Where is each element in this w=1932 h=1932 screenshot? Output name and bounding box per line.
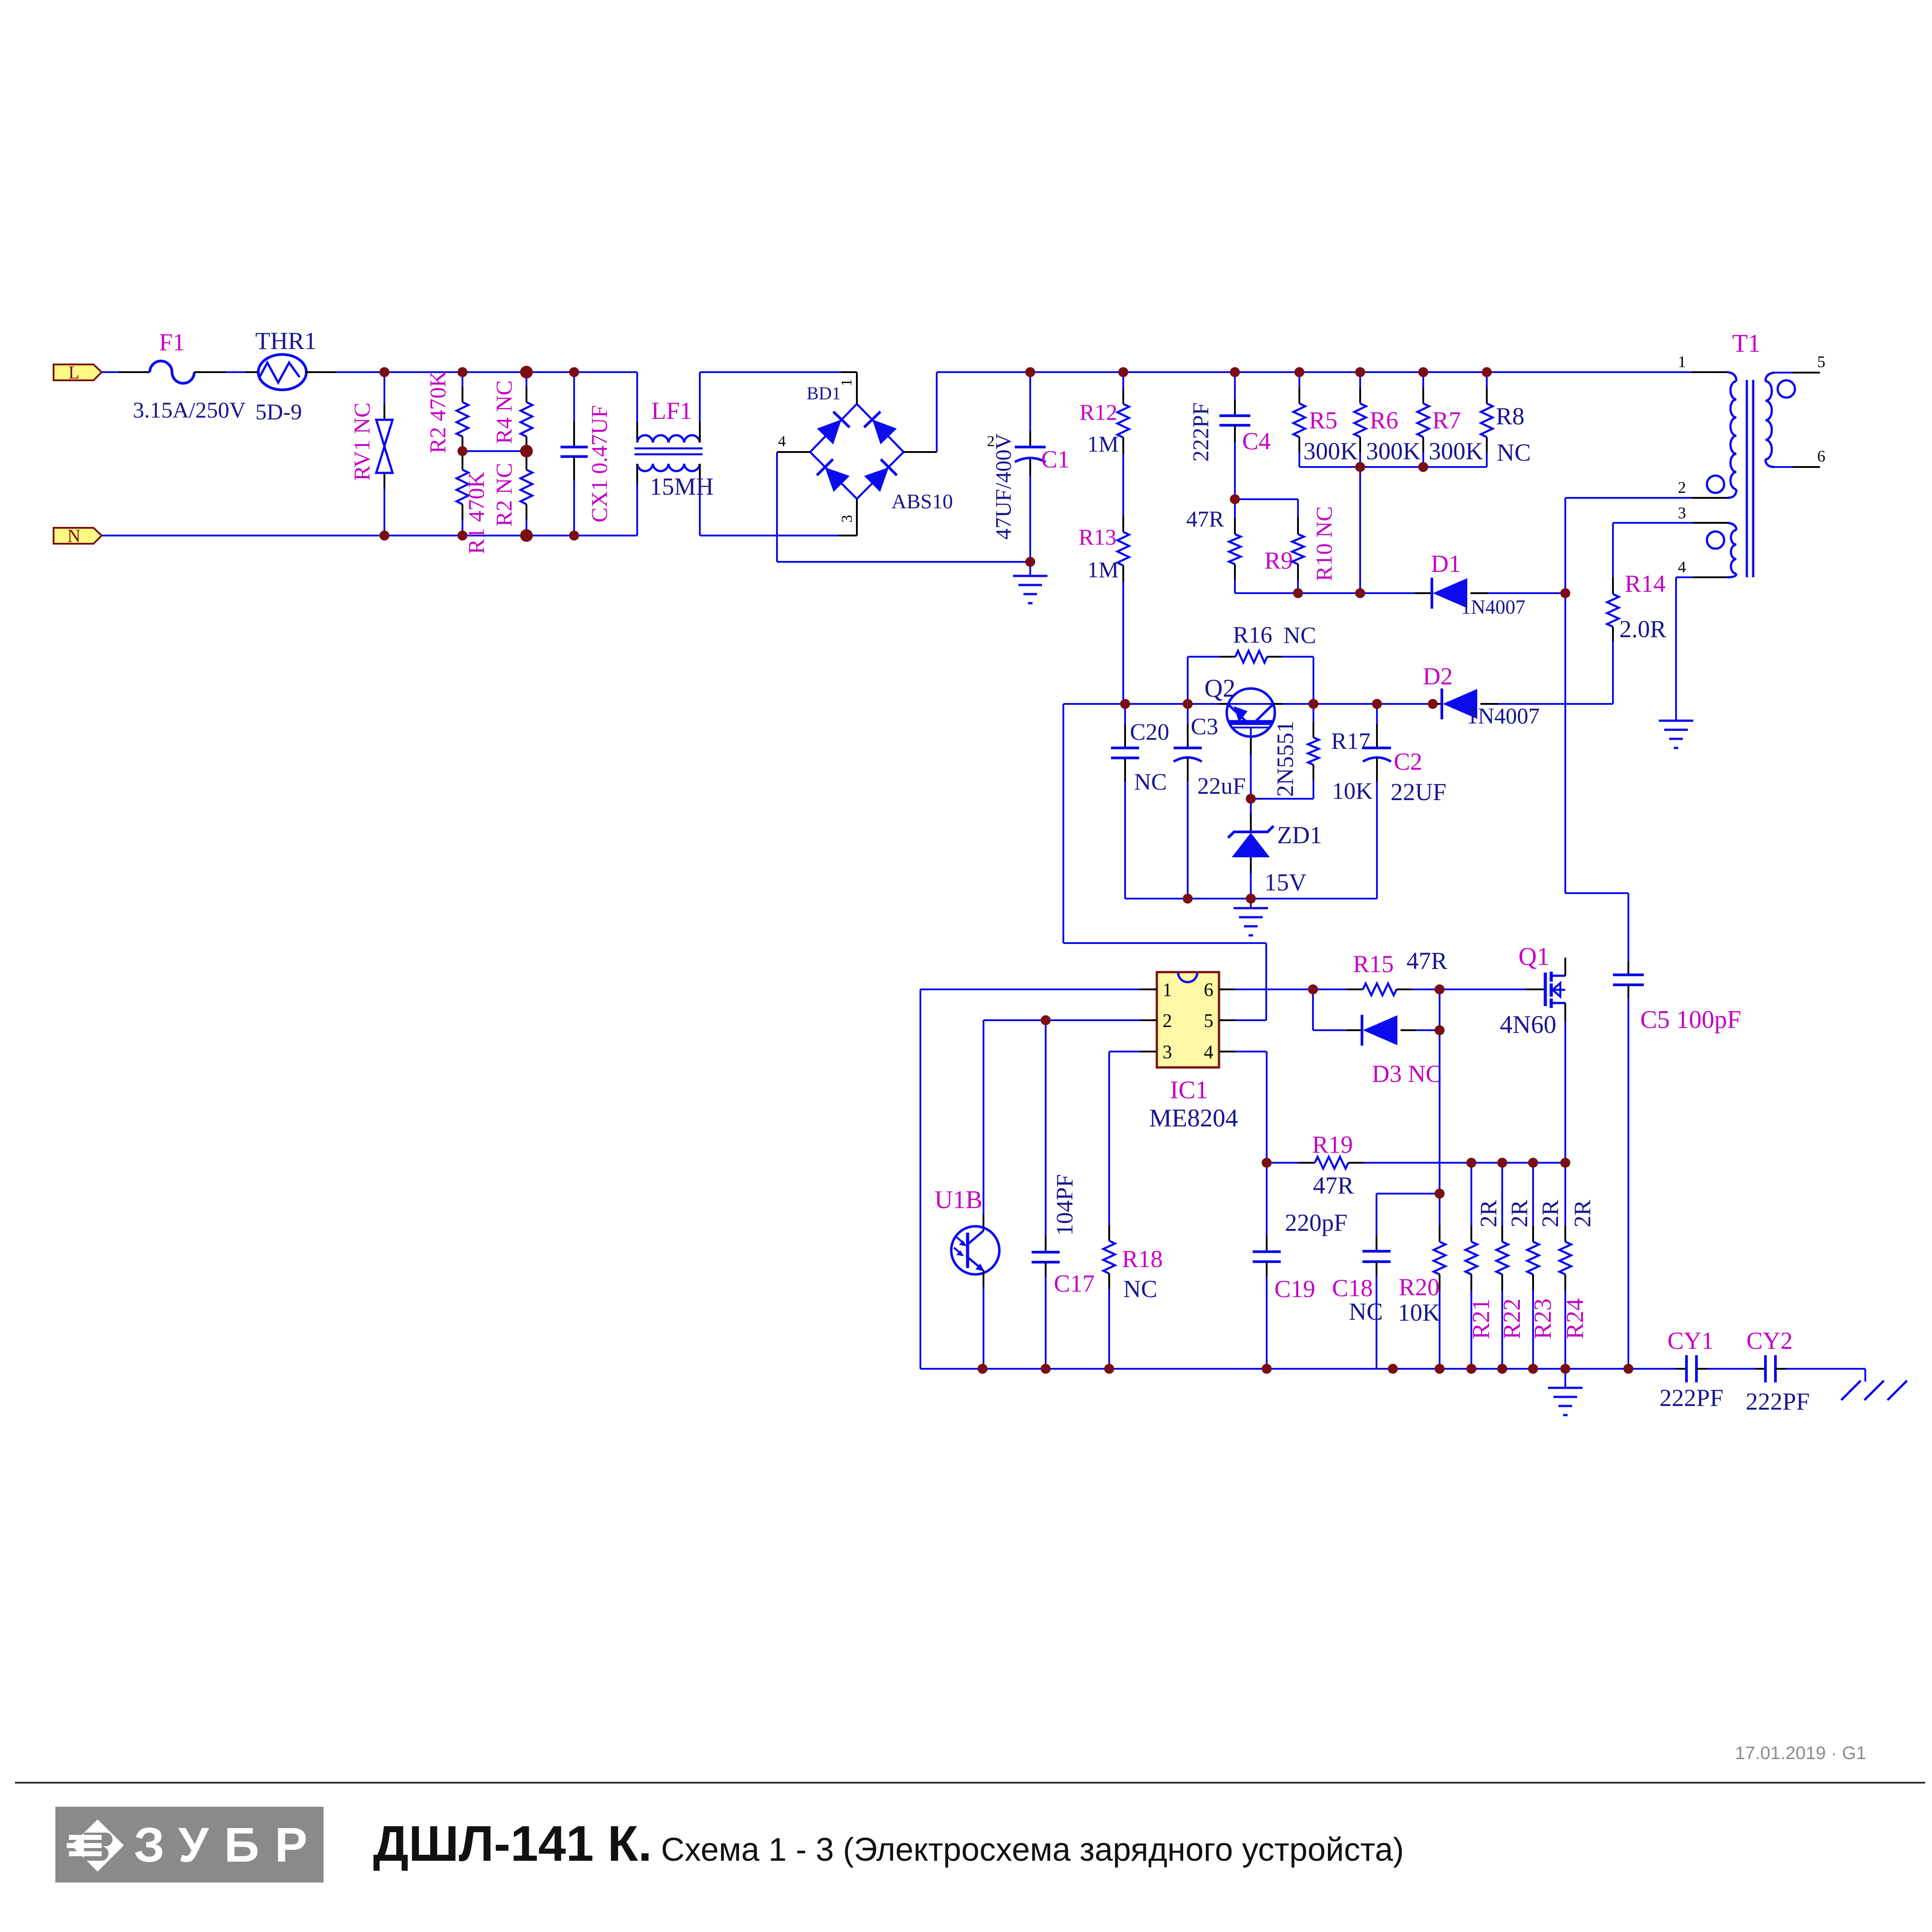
svg-text:U1B: U1B [934,1186,983,1214]
svg-text:NC: NC [1349,1298,1383,1325]
svg-text:R23: R23 [1529,1298,1556,1339]
svg-text:T1: T1 [1732,329,1760,358]
svg-text:4: 4 [1204,1042,1214,1063]
svg-text:1N4007: 1N4007 [1461,596,1525,618]
svg-text:222PF: 222PF [1188,403,1213,462]
svg-text:R12: R12 [1080,399,1117,425]
svg-text:2: 2 [1163,1011,1172,1032]
svg-text:1N4007: 1N4007 [1466,703,1539,728]
svg-text:NC: NC [1283,623,1316,649]
svg-text:R13: R13 [1079,524,1116,550]
svg-text:C5 100pF: C5 100pF [1640,1006,1741,1034]
svg-text:NC: NC [1497,439,1531,466]
svg-text:10K: 10K [1398,1299,1440,1326]
svg-text:THR1: THR1 [256,327,317,354]
svg-text:LF1: LF1 [651,397,692,424]
svg-text:R20: R20 [1399,1273,1440,1301]
svg-text:R10 NC: R10 NC [1311,506,1337,581]
svg-text:C4: C4 [1242,428,1271,455]
svg-text:C18: C18 [1332,1274,1373,1302]
svg-text:IC1: IC1 [1170,1076,1208,1104]
svg-text:2R: 2R [1570,1200,1596,1227]
svg-text:2R: 2R [1538,1200,1563,1227]
svg-text:R1 470K: R1 470K [463,472,489,554]
svg-text:1M: 1M [1087,557,1119,582]
svg-text:CY1: CY1 [1667,1327,1714,1354]
svg-text:R22: R22 [1498,1298,1525,1339]
svg-text:BD1: BD1 [806,383,841,403]
svg-text:47R: 47R [1186,506,1224,531]
svg-text:5D-9: 5D-9 [256,399,302,424]
svg-text:300K: 300K [1429,438,1483,465]
svg-text:4N60: 4N60 [1500,1011,1556,1039]
svg-text:NC: NC [1123,1275,1157,1303]
svg-text:C19: C19 [1274,1275,1315,1303]
svg-text:F1: F1 [159,329,185,356]
svg-text:2: 2 [1678,478,1686,497]
svg-text:ABS10: ABS10 [891,490,953,513]
svg-text:ME8204: ME8204 [1149,1104,1238,1132]
svg-text:R14: R14 [1625,570,1666,597]
svg-text:1: 1 [838,379,855,387]
svg-text:3.15A/250V: 3.15A/250V [133,397,246,423]
svg-text:ZD1: ZD1 [1277,821,1322,849]
svg-text:47R: 47R [1406,947,1447,974]
svg-text:R4 NC: R4 NC [491,380,516,444]
svg-text:CY2: CY2 [1746,1327,1793,1354]
svg-text:D1: D1 [1431,550,1461,577]
svg-text:R18: R18 [1122,1245,1163,1273]
svg-text:5: 5 [1204,1011,1214,1032]
svg-text:22UF: 22UF [1391,778,1446,806]
svg-text:R2 NC: R2 NC [491,463,516,526]
svg-text:R9: R9 [1264,547,1293,574]
svg-text:R5: R5 [1309,407,1337,434]
svg-text:2.0R: 2.0R [1619,615,1667,643]
svg-text:NC: NC [1134,769,1167,795]
svg-text:R7: R7 [1432,407,1461,434]
svg-text:300K: 300K [1303,438,1358,465]
svg-text:D3 NC: D3 NC [1372,1060,1442,1087]
svg-text:RV1 NC: RV1 NC [349,403,374,481]
svg-text:47R: 47R [1313,1172,1354,1199]
svg-text:C1: C1 [1041,446,1070,473]
svg-text:2R: 2R [1476,1200,1502,1227]
svg-text:15MH: 15MH [649,473,713,500]
svg-text:C17: C17 [1054,1270,1095,1297]
svg-text:R21: R21 [1467,1298,1494,1339]
svg-text:3: 3 [839,515,855,523]
svg-text:4: 4 [1678,558,1686,576]
svg-text:CX1 0.47UF: CX1 0.47UF [586,405,612,522]
svg-text:17.01.2019 · G1: 17.01.2019 · G1 [1735,1743,1866,1763]
svg-text:R24: R24 [1561,1298,1588,1339]
svg-text:Q1: Q1 [1519,943,1549,971]
svg-text:1M: 1M [1087,431,1119,457]
svg-text:C2: C2 [1394,748,1422,775]
svg-text:104PF: 104PF [1052,1174,1078,1236]
svg-text:10K: 10K [1332,778,1373,804]
svg-text:22uF: 22uF [1197,773,1246,799]
svg-text:222PF: 222PF [1745,1388,1809,1415]
svg-text:Q2: Q2 [1204,674,1235,703]
svg-text:R16: R16 [1233,622,1273,648]
svg-text:R19: R19 [1312,1131,1353,1158]
svg-text:222PF: 222PF [1659,1384,1723,1411]
svg-text:R8: R8 [1496,403,1524,430]
svg-text:4: 4 [778,433,786,450]
svg-text:R15: R15 [1353,950,1394,978]
svg-text:6: 6 [1817,447,1825,465]
svg-text:ЗУБР: ЗУБР [134,1817,323,1872]
svg-text:3: 3 [1163,1042,1172,1063]
svg-text:3: 3 [1678,504,1686,522]
svg-text:2R: 2R [1507,1200,1533,1227]
svg-text:220pF: 220pF [1285,1209,1347,1236]
svg-text:R6: R6 [1370,407,1398,434]
svg-text:47UF/400V: 47UF/400V [991,433,1016,540]
svg-text:N: N [68,526,81,546]
svg-text:C20: C20 [1130,719,1170,745]
svg-text:R17: R17 [1331,728,1371,754]
svg-text:300K: 300K [1366,438,1421,465]
svg-text:15V: 15V [1264,869,1307,896]
svg-text:L: L [69,362,79,383]
svg-text:2N5551: 2N5551 [1273,721,1298,797]
svg-text:R2 470K: R2 470K [425,371,450,453]
svg-text:C3: C3 [1191,714,1219,740]
svg-text:6: 6 [1204,980,1214,1001]
svg-text:1: 1 [1678,353,1686,371]
svg-text:1: 1 [1163,980,1172,1001]
svg-text:D2: D2 [1423,663,1453,690]
svg-text:5: 5 [1817,353,1825,371]
